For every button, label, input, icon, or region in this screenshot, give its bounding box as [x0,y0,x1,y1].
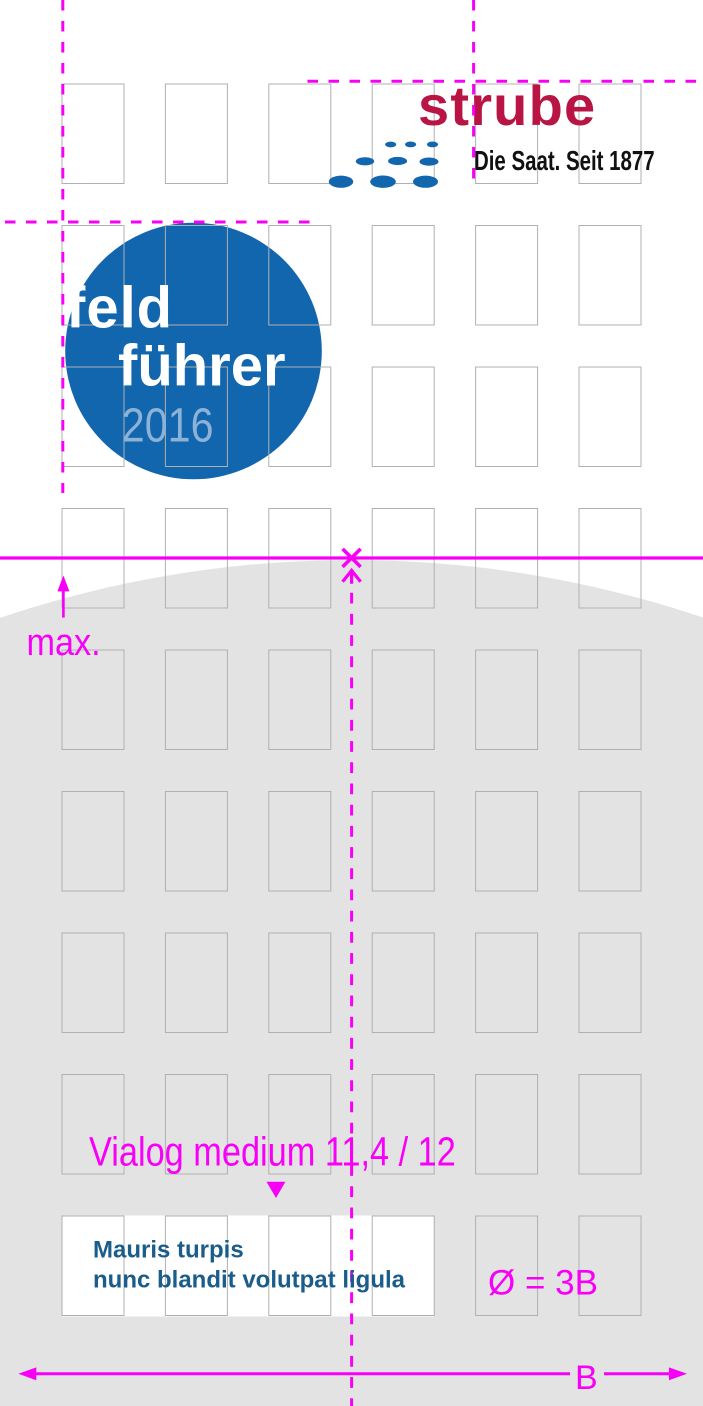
svg-text:B: B [575,1359,598,1397]
svg-text:Die Saat. Seit 1877: Die Saat. Seit 1877 [474,146,655,177]
svg-text:Ø = 3B: Ø = 3B [488,1264,598,1303]
svg-text:Mauris turpis: Mauris turpis [93,1237,244,1264]
svg-text:führer: führer [118,334,286,399]
svg-text:nunc blandit volutpat ligula: nunc blandit volutpat ligula [93,1267,406,1294]
svg-text:Vialog medium 11,4 / 12: Vialog medium 11,4 / 12 [89,1130,456,1176]
svg-text:2016: 2016 [122,397,214,452]
svg-text:strube: strube [418,74,596,137]
svg-text:feld: feld [66,276,173,341]
svg-text:max.: max. [27,620,101,663]
